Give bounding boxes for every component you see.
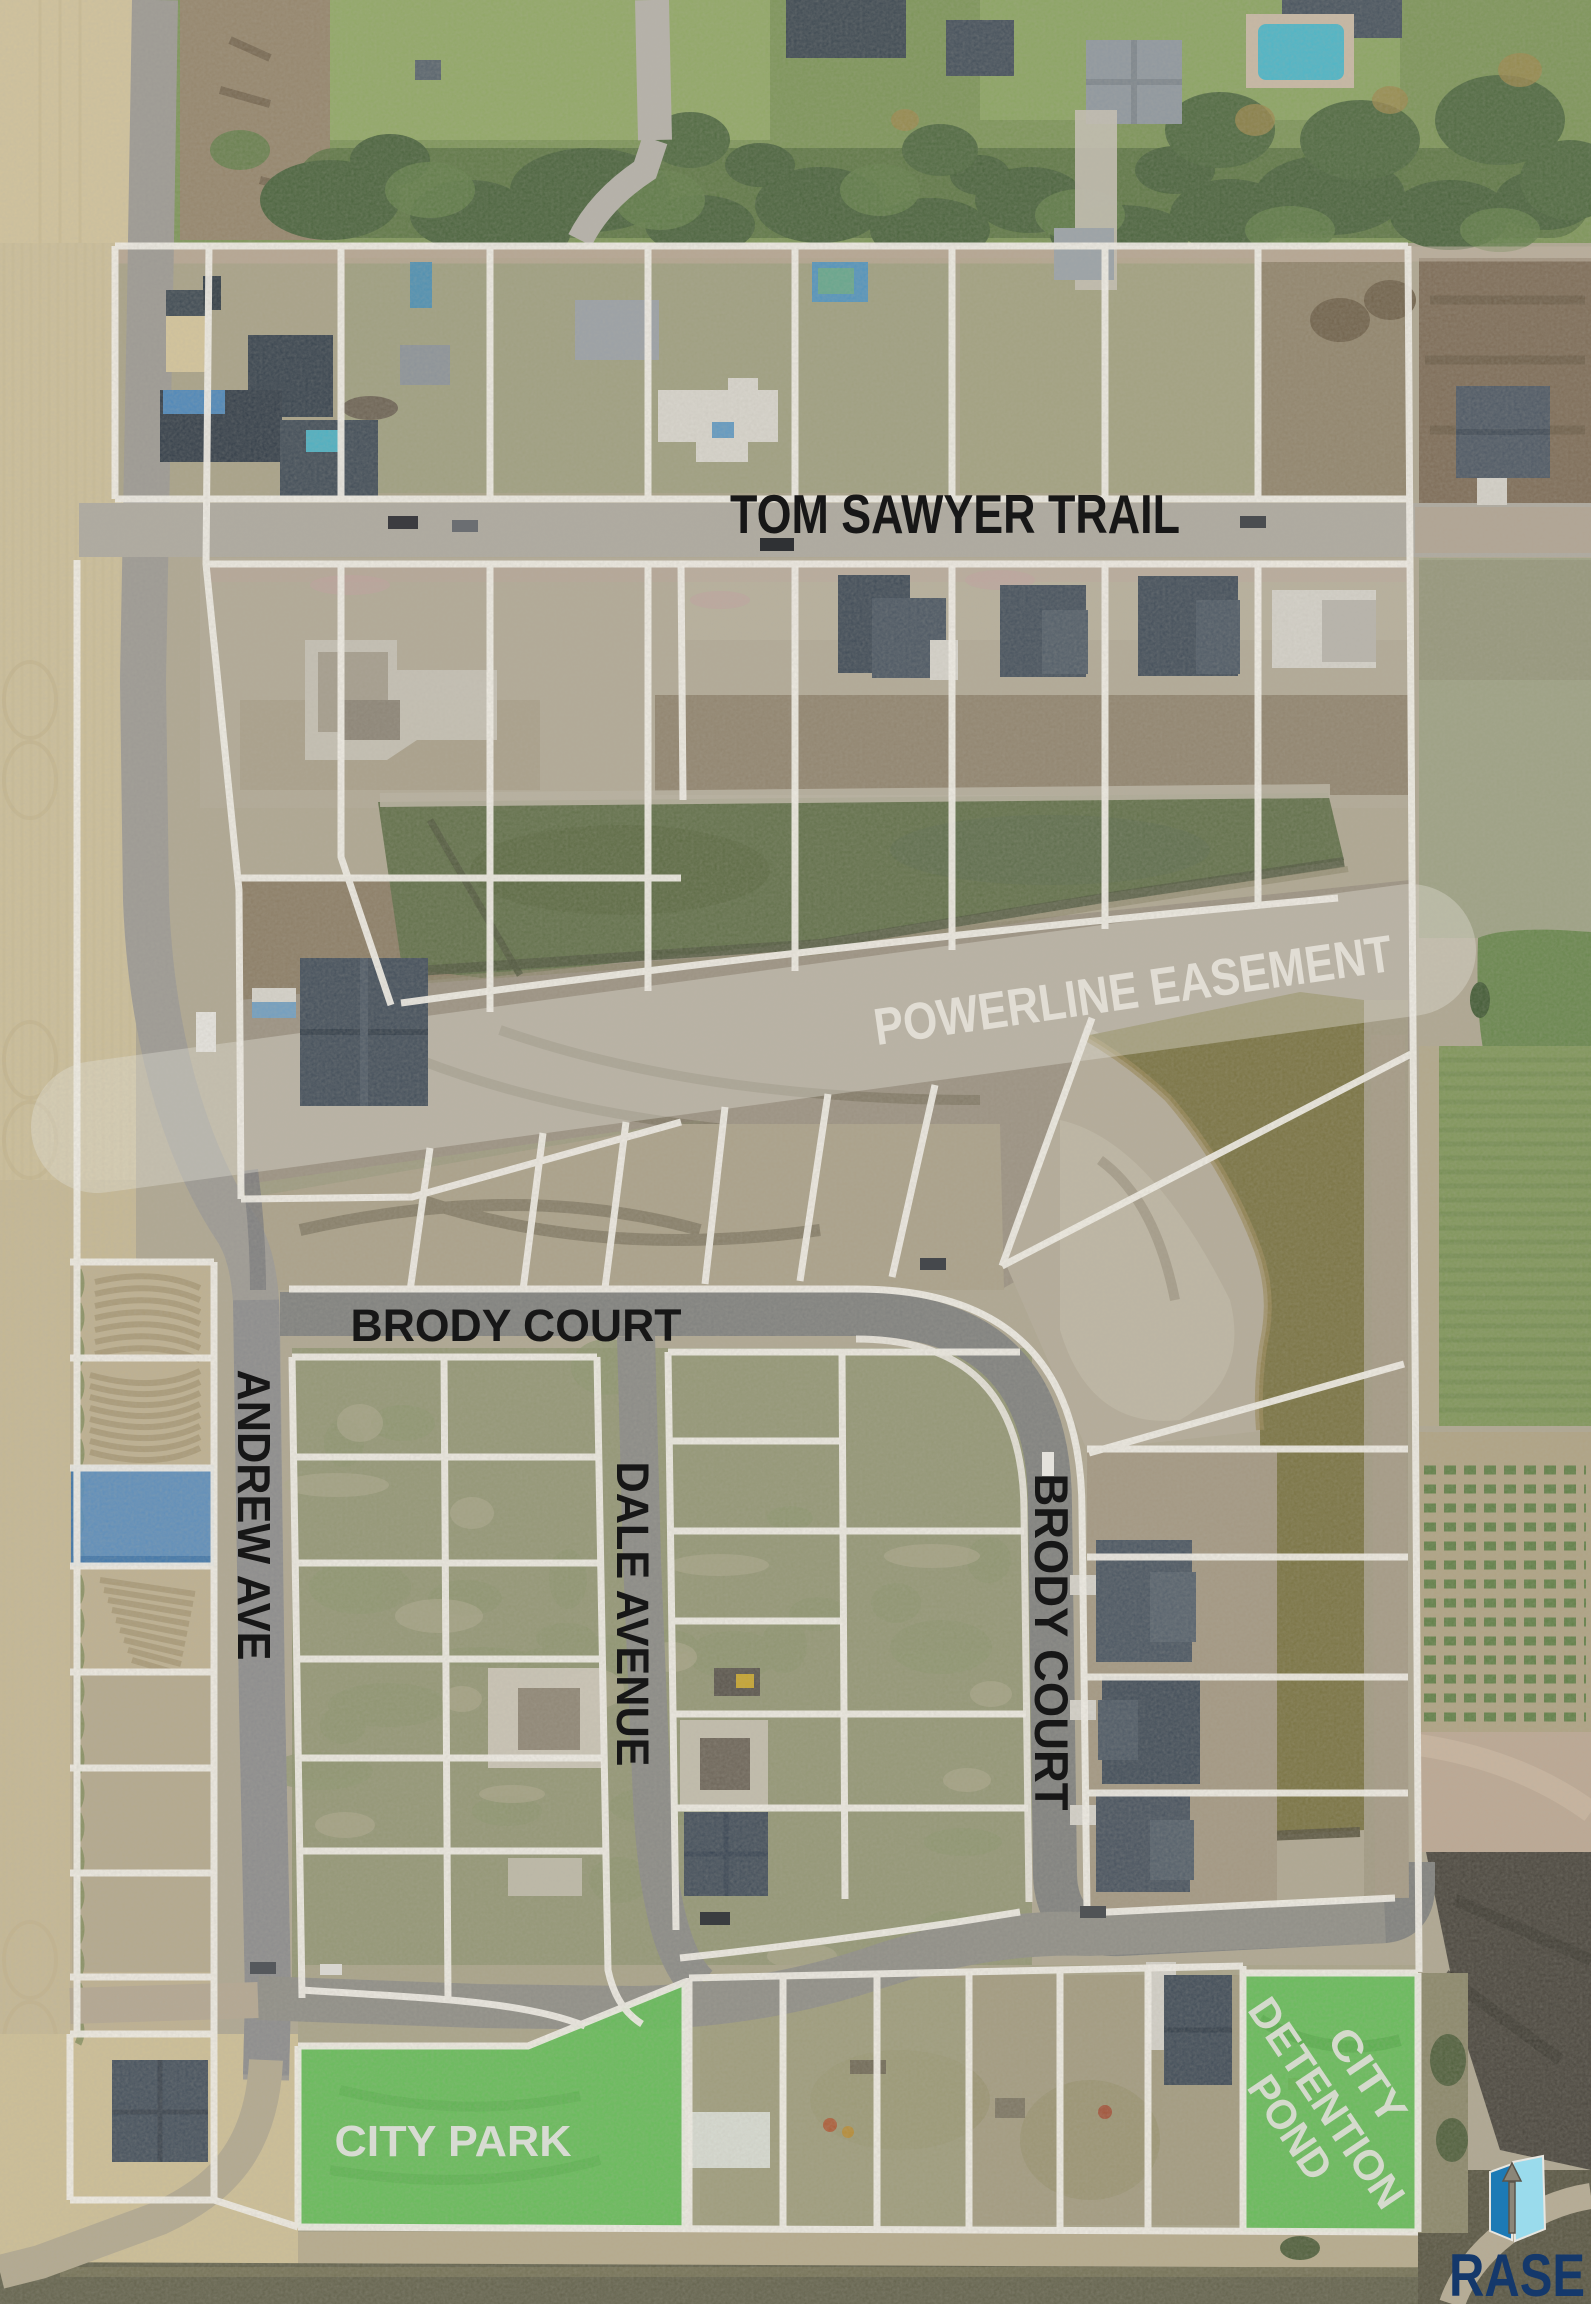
svg-text:BRODY COURT: BRODY COURT [351, 1300, 682, 1351]
svg-text:BRODY COURT: BRODY COURT [1025, 1474, 1078, 1811]
svg-text:CITY PARK: CITY PARK [335, 2117, 572, 2166]
svg-text:RASE: RASE [1449, 2242, 1585, 2304]
svg-text:ANDREW AVE: ANDREW AVE [228, 1370, 280, 1661]
svg-text:TOM SAWYER TRAIL: TOM SAWYER TRAIL [730, 483, 1180, 545]
svg-text:DALE AVENUE: DALE AVENUE [607, 1462, 658, 1767]
